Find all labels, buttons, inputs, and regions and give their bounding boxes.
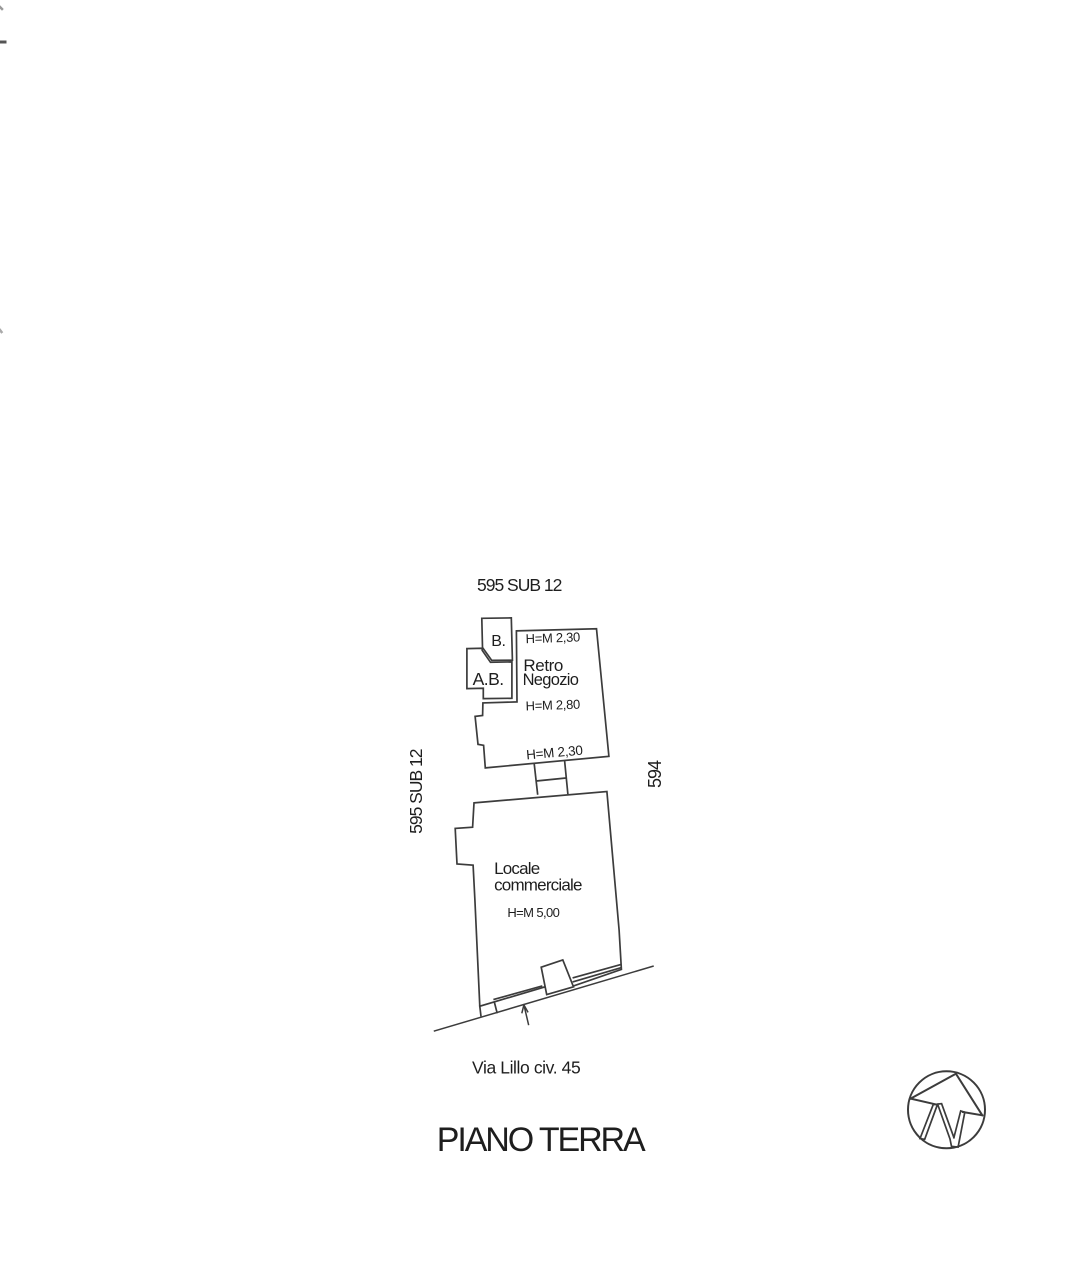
- svg-text:PIANO TERRA: PIANO TERRA: [437, 1121, 646, 1159]
- svg-text:H=M 2,30: H=M 2,30: [525, 629, 580, 646]
- svg-text:Negozio: Negozio: [523, 671, 579, 689]
- svg-text:595 SUB 12: 595 SUB 12: [477, 575, 562, 595]
- svg-text:Via Lillo civ. 45: Via Lillo civ. 45: [472, 1058, 580, 1078]
- svg-text:594: 594: [645, 760, 665, 788]
- svg-text:A.B.: A.B.: [473, 669, 504, 689]
- svg-text:595 SUB 12: 595 SUB 12: [406, 749, 426, 834]
- svg-text:commerciale: commerciale: [494, 876, 582, 895]
- svg-text:H=M 2,80: H=M 2,80: [525, 697, 580, 714]
- svg-text:B.: B.: [491, 633, 505, 650]
- svg-text:H=M 5,00: H=M 5,00: [507, 905, 559, 920]
